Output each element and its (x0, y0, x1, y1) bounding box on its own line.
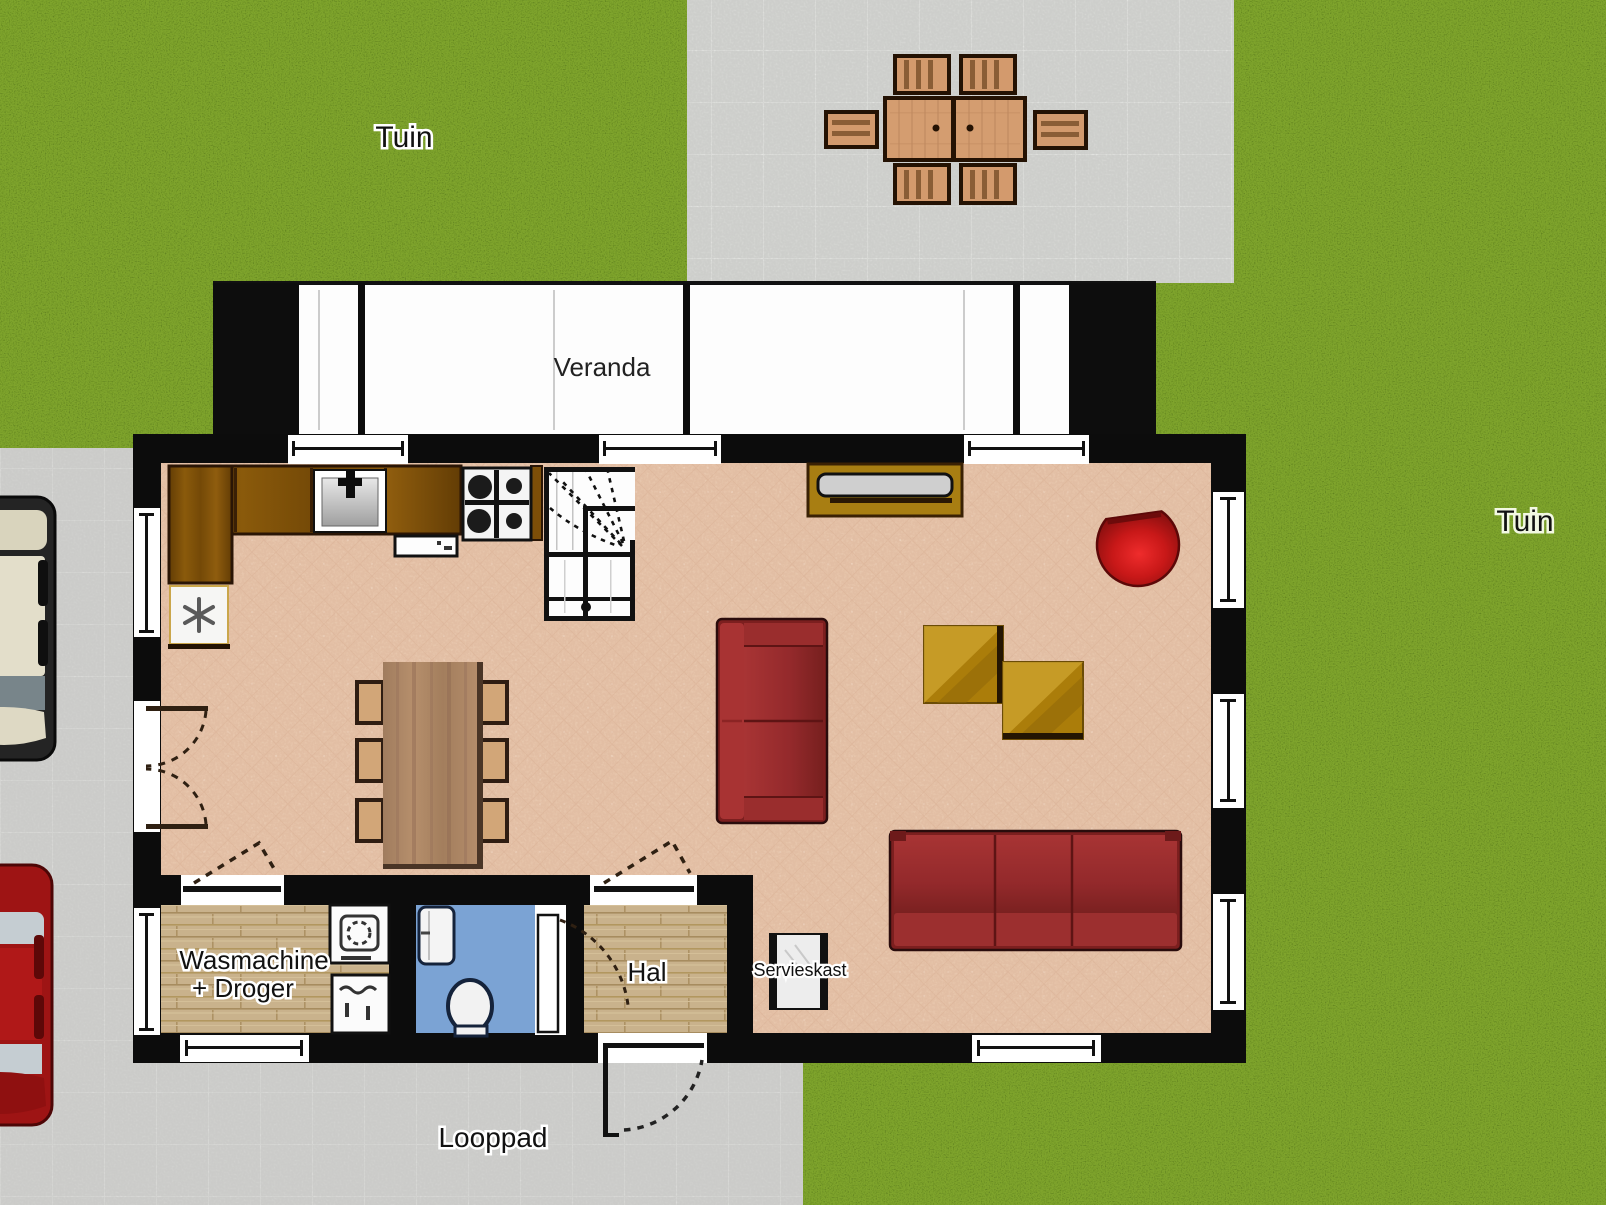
svg-text:Tuin: Tuin (375, 121, 432, 154)
svg-text:Tuin: Tuin (1496, 505, 1553, 538)
svg-text:Servieskast: Servieskast (753, 960, 846, 980)
svg-text:Looppad: Looppad (438, 1122, 547, 1153)
svg-text:+ Droger: + Droger (192, 973, 294, 1003)
svg-text:Wasmachine: Wasmachine (179, 945, 328, 975)
svg-text:Hal: Hal (627, 957, 666, 987)
svg-text:Veranda: Veranda (554, 352, 651, 382)
